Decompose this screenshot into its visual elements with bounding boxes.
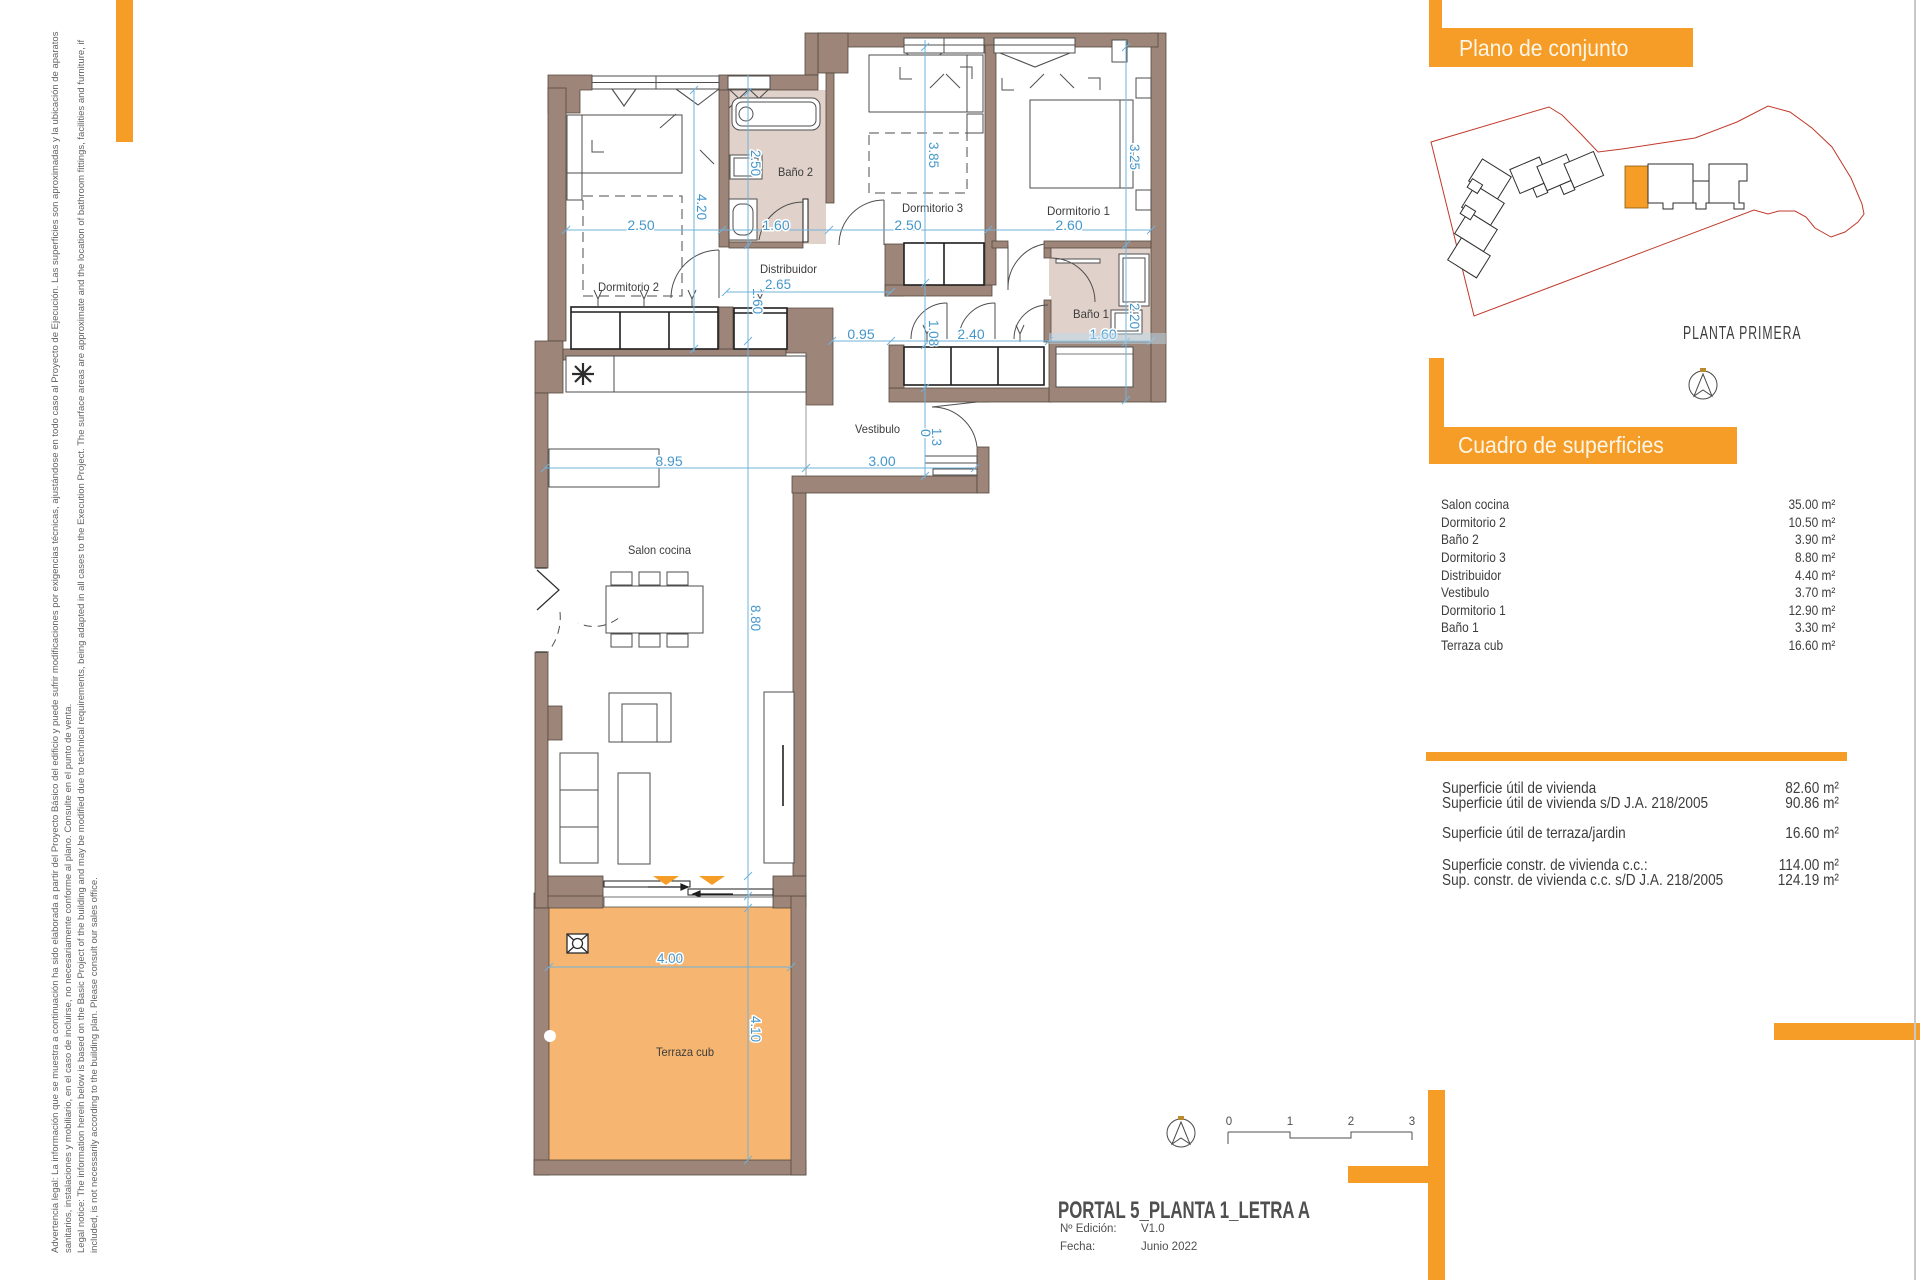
svg-text:4.10: 4.10	[748, 1016, 764, 1042]
svg-text:1.3: 1.3	[929, 428, 945, 446]
svg-text:1.08: 1.08	[926, 320, 942, 346]
svg-text:2.60: 2.60	[1055, 217, 1082, 233]
svg-text:1.60: 1.60	[762, 217, 789, 233]
svg-text:3: 3	[1409, 1116, 1415, 1128]
svg-text:2: 2	[1348, 1116, 1354, 1128]
svg-text:4.00: 4.00	[657, 950, 683, 966]
svg-text:4.20: 4.20	[694, 194, 710, 220]
svg-text:8.80: 8.80	[748, 605, 764, 631]
svg-text:2.50: 2.50	[748, 150, 764, 176]
svg-text:Vestibulo: Vestibulo	[855, 422, 900, 436]
svg-text:Distribuidor: Distribuidor	[760, 262, 817, 276]
svg-text:0: 0	[1226, 1116, 1232, 1128]
svg-text:3.85: 3.85	[926, 142, 942, 168]
svg-text:1: 1	[1287, 1116, 1293, 1128]
svg-text:Salon cocina: Salon cocina	[628, 543, 691, 557]
svg-text:Baño 2: Baño 2	[778, 165, 813, 179]
svg-text:2.50: 2.50	[894, 217, 921, 233]
svg-text:8.95: 8.95	[655, 453, 682, 469]
svg-text:2.50: 2.50	[627, 217, 654, 233]
svg-text:Baño 1: Baño 1	[1073, 307, 1109, 321]
svg-text:Dormitorio 1: Dormitorio 1	[1047, 204, 1110, 218]
svg-text:0.95: 0.95	[847, 326, 874, 342]
svg-text:Terraza cub: Terraza cub	[656, 1045, 714, 1059]
svg-text:2.65: 2.65	[765, 276, 791, 292]
svg-text:Dormitorio 2: Dormitorio 2	[598, 280, 659, 294]
svg-text:Dormitorio 3: Dormitorio 3	[902, 201, 963, 215]
svg-text:2.20: 2.20	[1127, 303, 1143, 329]
svg-text:2.40: 2.40	[957, 326, 984, 342]
svg-text:3.25: 3.25	[1127, 144, 1143, 170]
svg-text:3.00: 3.00	[868, 453, 895, 469]
